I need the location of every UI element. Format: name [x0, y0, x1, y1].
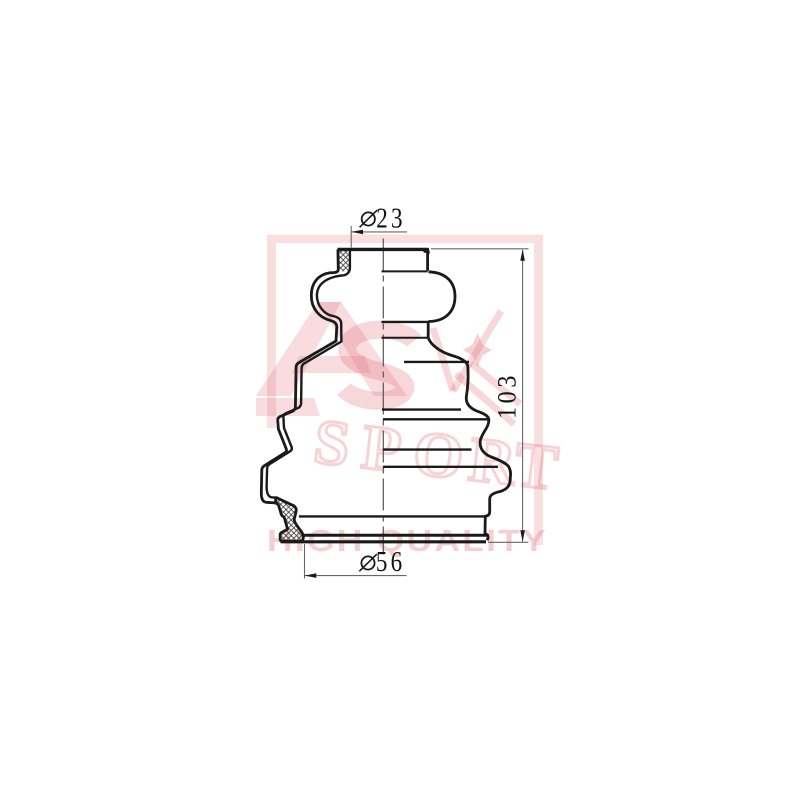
- svg-text:23: 23: [376, 203, 406, 234]
- svg-text:56: 56: [376, 547, 406, 578]
- svg-text:P: P: [358, 411, 405, 486]
- svg-text:O: O: [410, 417, 467, 493]
- svg-text:T: T: [511, 428, 561, 503]
- svg-text:103: 103: [492, 372, 522, 419]
